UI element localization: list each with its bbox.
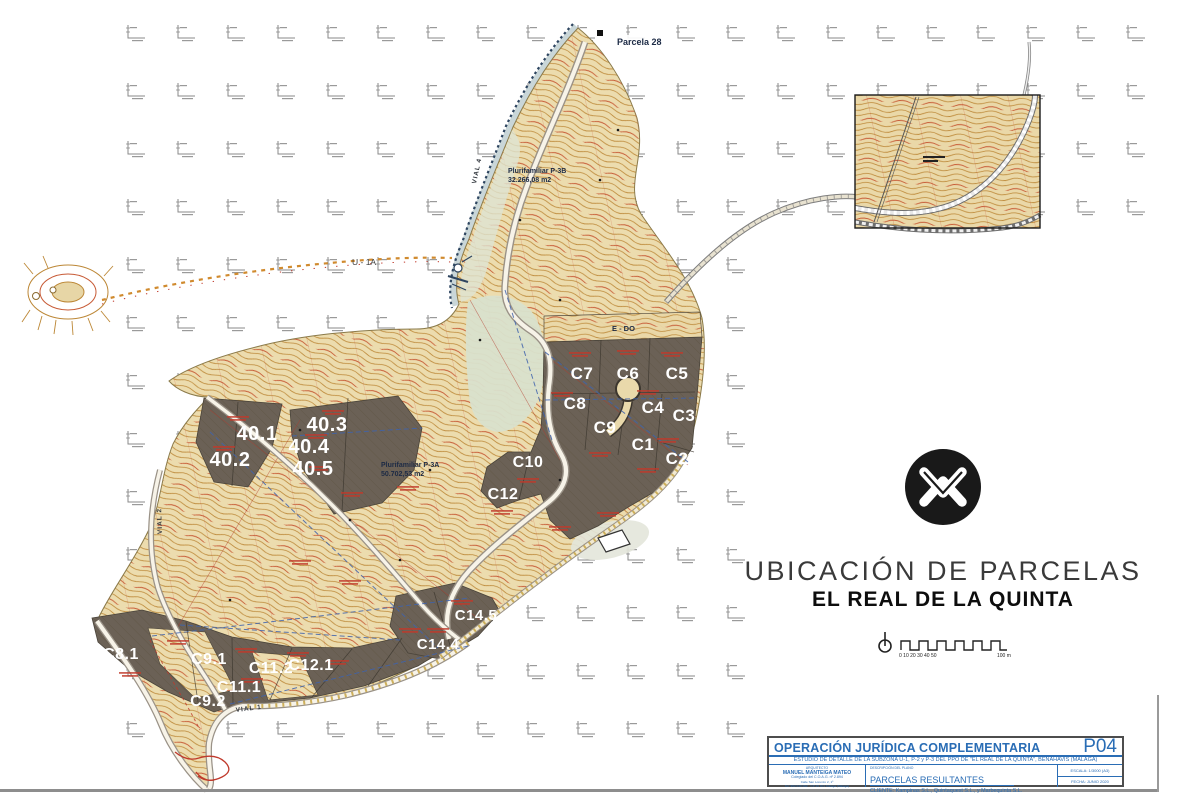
grid-mark [376,83,395,99]
grid-mark [326,315,345,331]
u1a-label: U - 1A [352,257,376,267]
grid-mark [126,199,145,215]
grid-mark [676,199,695,215]
inset-map [855,95,1040,231]
grid-mark [676,663,695,679]
hill-contours [22,256,113,335]
scale-date-column: ESCALA: 1/3000 (A3) FECHA: JUNIO 2020 [1057,765,1122,787]
grid-mark [776,141,795,157]
grid-mark [826,83,845,99]
plurifamiliar-a-label-2: 50.702,53 m2 [381,471,424,478]
grid-mark [226,721,245,737]
grid-mark [426,83,445,99]
scale-ticks-label: 0 10 20 30 40 50 [899,653,937,659]
grid-mark [1126,83,1145,99]
architect-line3: Tel: 952 040 092 - CP 29 001 Málaga (Mál… [769,784,865,789]
parcel-label-C9-1: C9.1 [191,651,227,668]
grid-mark [676,83,695,99]
parcel-label-C14-5: C14.5 [455,607,498,624]
grid-mark [276,83,295,99]
grid-mark [1076,199,1095,215]
parcel-label-40-4: 40.4 [289,436,330,458]
grid-mark [326,257,345,273]
grid-mark [726,25,745,41]
grid-mark [276,199,295,215]
grid-mark [1076,83,1095,99]
grid-mark [676,489,695,505]
grid-mark [876,25,895,41]
logo [903,447,983,527]
grid-mark [376,25,395,41]
grid-mark [426,721,445,737]
title-block: OPERACIÓN JURÍDICA COMPLEMENTARIA P04 ES… [767,736,1124,787]
parcel-label-C10: C10 [513,454,544,471]
grid-mark [126,315,145,331]
grid-mark [726,431,745,447]
grid-mark [1076,141,1095,157]
grid-mark [276,721,295,737]
grid-mark [326,721,345,737]
parcel-label-C8: C8 [564,394,587,413]
north-symbol [879,632,891,652]
grid-mark [276,315,295,331]
grid-mark [126,25,145,41]
grid-mark [226,25,245,41]
grid-mark [676,721,695,737]
site-plan-map: Parcela 28 Plurifamiliar P-3B 32.266,08 … [0,0,1200,796]
grid-mark [276,141,295,157]
grid-mark [126,721,145,737]
grid-mark [726,663,745,679]
plurifamiliar-a-label-1: Plurifamiliar P-3A [381,462,439,469]
grid-mark [176,141,195,157]
grid-mark [726,83,745,99]
grid-mark [626,721,645,737]
edo-label: E - DO [612,324,635,333]
grid-mark [376,721,395,737]
parcel-label-C6: C6 [617,364,640,383]
parcel-label-C12: C12 [488,486,519,503]
title-block-header: OPERACIÓN JURÍDICA COMPLEMENTARIA P04 [769,738,1122,757]
grid-mark [1076,25,1095,41]
grid-mark [576,663,595,679]
parcel-label-C1: C1 [632,435,655,454]
client-line: CLIENTE: Kampinas S.L., Quintaquest S.L.… [870,788,1053,795]
grid-mark [1126,25,1145,41]
ridge-ticks [102,262,452,304]
parcel-label-C3: C3 [673,406,696,425]
grid-mark [226,257,245,273]
project-description: ESTUDIO DE DETALLE DE LA SUBZONA U-1, P-… [769,757,1122,765]
plurifamiliar-b-label-1: Plurifamiliar P-3B [508,168,566,175]
description-heading: DESCRIPCIÓN DEL PLANO [870,766,1053,770]
grid-mark [726,489,745,505]
scale-bar-steps [901,641,1007,650]
grid-mark [226,141,245,157]
parcel-label-C12-1: C12.1 [288,657,333,674]
description-column: DESCRIPCIÓN DEL PLANO PARCELAS RESULTANT… [865,765,1057,787]
parcel-label-C9: C9 [594,418,617,437]
parcel-label-40-2: 40.2 [210,449,251,471]
grid-mark [476,141,495,157]
grid-mark [226,83,245,99]
plan-sheet: Parcela 28 Plurifamiliar P-3B 32.266,08 … [0,0,1200,796]
grid-mark [576,605,595,621]
parcel-label-C5: C5 [666,364,689,383]
grid-mark [226,315,245,331]
scale-bar: 0 10 20 30 40 50 100 m [873,630,1023,665]
plan-name: PARCELAS RESULTANTES [870,775,1014,786]
grid-mark [1126,141,1145,157]
grid-mark [276,25,295,41]
grid-mark [426,141,445,157]
parcel-label-40-5: 40.5 [293,458,334,480]
parcela28-label: Parcela 28 [617,37,662,47]
parcel-label-C8-1: C8.1 [103,646,139,663]
grid-mark [826,141,845,157]
grid-mark [1026,25,1045,41]
grid-mark [726,257,745,273]
sheet-frame-right [1157,695,1159,792]
grid-mark [576,721,595,737]
parcel-label-40-1: 40.1 [237,423,278,445]
grid-mark [776,25,795,41]
grid-mark [476,721,495,737]
grid-mark [776,83,795,99]
grid-mark [326,199,345,215]
plurifamiliar-b-label-2: 32.266,08 m2 [508,177,551,184]
grid-mark [176,83,195,99]
vial2-label: VIAL 2 [156,508,164,534]
grid-mark [226,199,245,215]
grid-mark [676,25,695,41]
parcel-label-C9-2: C9.2 [190,693,226,710]
legend-title: UBICACIÓN DE PARCELAS [733,556,1153,587]
grid-mark [326,141,345,157]
grid-mark [526,663,545,679]
grid-mark [476,83,495,99]
grid-mark [826,199,845,215]
grid-mark [526,721,545,737]
grid-mark [426,257,445,273]
grid-mark [326,83,345,99]
grid-mark [526,605,545,621]
vial4-label: VIAL 4 [471,157,483,184]
grid-mark [676,141,695,157]
grid-mark [376,315,395,331]
grid-mark [126,141,145,157]
grid-mark [676,605,695,621]
scale-end-label: 100 m [997,653,1011,659]
grid-mark [126,489,145,505]
grid-mark [126,373,145,389]
grid-mark [376,199,395,215]
parcel-label-40-3: 40.3 [307,414,348,436]
grid-mark [176,199,195,215]
grid-mark [526,25,545,41]
grid-mark [726,315,745,331]
grid-mark [626,663,645,679]
grid-mark [976,25,995,41]
grid-mark [726,373,745,389]
grid-mark [726,141,745,157]
scale-value: ESCALA: 1/3000 (A3) [1058,765,1122,776]
grid-mark [626,605,645,621]
grid-mark [176,25,195,41]
grid-mark [926,25,945,41]
grid-mark [176,257,195,273]
grid-mark [126,83,145,99]
grid-mark [426,199,445,215]
grid-mark [826,25,845,41]
grid-mark [126,257,145,273]
title-block-body: ARQUITECTO MANUEL MANTEIGA MATEO Colegia… [769,765,1122,787]
legend-subtitle: EL REAL DE LA QUINTA [733,588,1153,612]
parcel-label-C14-4: C14.4 [417,636,460,653]
parcel-label-C2: C2 [666,449,689,468]
grid-mark [476,663,495,679]
architect-column: ARQUITECTO MANUEL MANTEIGA MATEO Colegia… [769,765,865,787]
grid-mark [1126,199,1145,215]
grid-mark [676,547,695,563]
grid-mark [726,721,745,737]
grid-mark [126,431,145,447]
grid-mark [376,141,395,157]
parcel-label-C7: C7 [571,364,594,383]
title-block-title: OPERACIÓN JURÍDICA COMPLEMENTARIA [774,741,1040,755]
grid-mark [726,199,745,215]
parcel-label-C4: C4 [642,398,665,417]
grid-mark [326,25,345,41]
grid-mark [426,25,445,41]
sheet-number: P04 [1083,738,1117,755]
parcel-label-C11-2: C11.2 [249,660,293,677]
date-value: FECHA: JUNIO 2020 [1058,776,1122,788]
grid-mark [476,25,495,41]
grid-mark [176,315,195,331]
